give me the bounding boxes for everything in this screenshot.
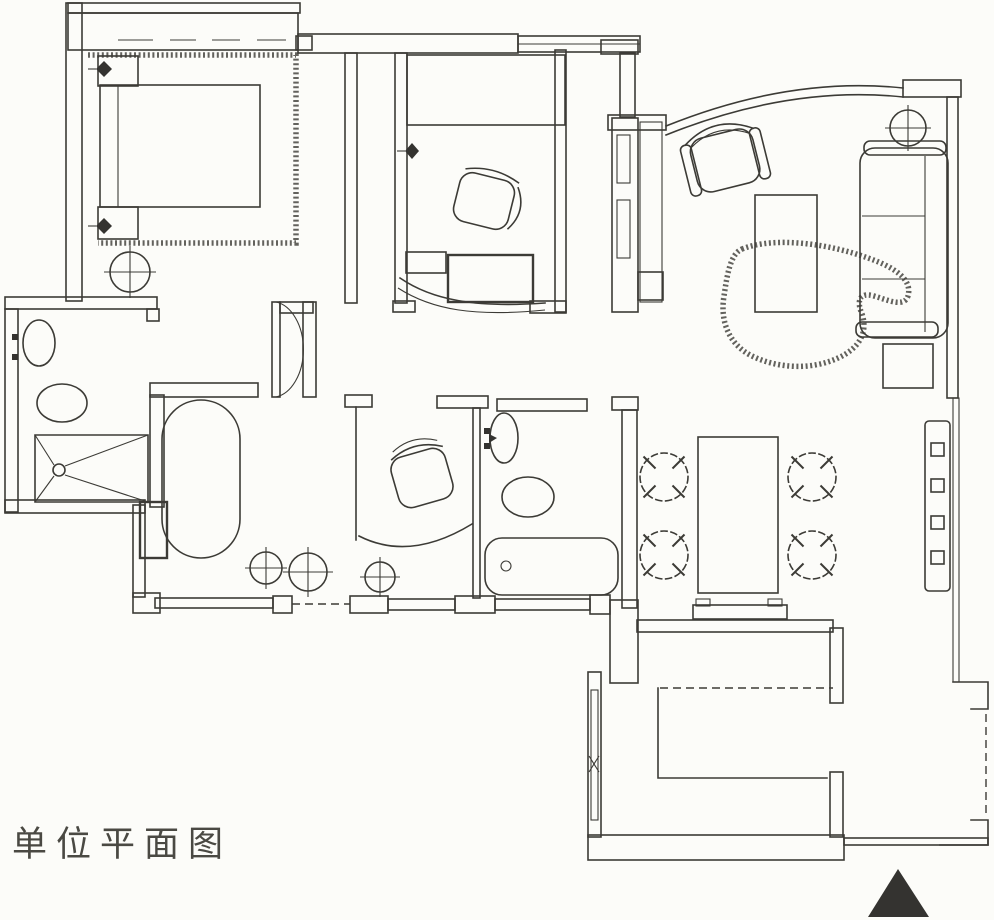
- south-band-window-a: [155, 598, 273, 608]
- display-cabinet-knob-3: [931, 516, 944, 529]
- kitchen-west-window-inner: [591, 690, 598, 820]
- sofa-side-table: [883, 344, 933, 388]
- shower-line-b: [65, 435, 148, 466]
- bed: [100, 85, 260, 207]
- study-curved-counter-b: [398, 288, 545, 313]
- ne-corner-wall: [620, 53, 635, 117]
- bath-top-wall-hook: [147, 309, 159, 321]
- kitchen-wall-column: [610, 600, 638, 683]
- hall-ceiling-lamp-a: [245, 547, 287, 589]
- partition-cap-c: [497, 399, 587, 411]
- mid-curved-desk: [359, 524, 472, 547]
- door-side-wall-nub: [280, 302, 313, 313]
- south-band-block-b: [273, 596, 292, 613]
- bedroom-top-wall-outer: [68, 3, 300, 13]
- dining-wall-cap: [612, 397, 638, 410]
- left-toilet: [37, 384, 87, 422]
- kitchen-counter: [658, 688, 827, 778]
- shower-drain: [53, 464, 65, 476]
- tv-cabinet-shelf-b: [617, 200, 630, 258]
- plan-title: 单位平面图: [12, 816, 232, 867]
- bedroom-rug-border: [88, 55, 296, 243]
- bedroom-ceiling-lamp: [104, 246, 156, 298]
- mid-basin-spout: [489, 434, 497, 443]
- mid-toilet: [502, 477, 554, 517]
- tv-cabinet-side: [640, 122, 662, 302]
- shower-line-c: [65, 475, 148, 502]
- study-chair-seat: [451, 170, 517, 232]
- living-rug: [723, 242, 909, 366]
- dining-chair-sw: [640, 531, 688, 579]
- dining-table: [698, 437, 778, 593]
- curved-window-end-block: [903, 80, 961, 97]
- bedroom-door-leaf: [272, 302, 280, 397]
- shower-line-a: [35, 435, 54, 465]
- top-wall-middle: [298, 34, 518, 53]
- mid-basin-tap-b: [484, 443, 490, 449]
- entry-jamb-top: [953, 682, 988, 709]
- partition-wall-b: [473, 408, 480, 598]
- south-band-window-b: [388, 599, 455, 610]
- armchair-seat: [687, 126, 762, 195]
- tv-cabinet-base: [638, 272, 663, 300]
- armchair-back-inner: [689, 124, 750, 148]
- shaft-wall: [303, 302, 316, 397]
- display-cabinet-knob-1: [931, 443, 944, 456]
- dining-chair-ne: [788, 453, 836, 501]
- south-band-window-c: [495, 599, 590, 610]
- study-cabinet-small: [406, 252, 446, 273]
- dining-west-wall: [622, 410, 637, 608]
- coffee-table: [755, 195, 817, 312]
- bathtub-drain: [501, 561, 511, 571]
- shower-tray: [35, 435, 148, 502]
- east-wall-lower: [953, 398, 959, 682]
- kitchen-bar-ne: [830, 628, 843, 703]
- hall-ceiling-lamp-c: [360, 557, 400, 597]
- sofa-armrest-bottom: [856, 322, 938, 337]
- tv-cabinet-shelf-a: [617, 135, 630, 183]
- kitchen-south-wall: [588, 835, 844, 860]
- north-arrow: [868, 869, 929, 917]
- bedroom-study-wall-a: [345, 53, 357, 303]
- entry-south-wall: [844, 838, 988, 845]
- dining-chair-se: [788, 531, 836, 579]
- kitchen-bar-se: [830, 772, 843, 837]
- mid-basin-tap-a: [484, 428, 490, 434]
- south-band-block-a: [133, 593, 160, 613]
- curved-window-outer: [666, 86, 903, 126]
- bath-top-wall: [5, 297, 157, 309]
- floorplan-drawing: [0, 0, 994, 920]
- soaking-tub: [162, 400, 240, 558]
- partition-cap-b: [437, 396, 488, 408]
- left-basin-tap-b: [12, 354, 18, 360]
- hall-ceiling-lamp-b: [283, 547, 333, 597]
- entry-jamb-bottom: [940, 820, 988, 845]
- living-ceiling-lamp: [885, 105, 931, 151]
- kitchen-west-window: [588, 672, 601, 837]
- tv-cabinet: [612, 118, 638, 312]
- study-desk: [407, 55, 565, 125]
- left-basin: [23, 320, 55, 366]
- sofa-body: [860, 148, 948, 338]
- study-cabinet: [448, 255, 533, 302]
- dining-chair-nw: [640, 453, 688, 501]
- curved-window-inner: [666, 95, 903, 135]
- tubroom-top-wall: [150, 383, 258, 397]
- mid-chair-back-b: [391, 434, 437, 453]
- display-cabinet-knob-4: [931, 551, 944, 564]
- left-basin-tap-a: [12, 334, 18, 340]
- kitchen-counter-top: [637, 620, 833, 632]
- display-cabinet: [925, 421, 950, 591]
- sideboard: [693, 605, 787, 619]
- south-band-block-e: [590, 595, 610, 614]
- display-cabinet-knob-2: [931, 479, 944, 492]
- floorplan-page: 单位平面图: [0, 0, 994, 920]
- shower-line-d: [35, 476, 54, 502]
- bedroom-window: [68, 13, 298, 50]
- bathtub: [485, 538, 618, 595]
- south-band-block-c: [350, 596, 388, 613]
- partition-cap-a: [345, 395, 372, 407]
